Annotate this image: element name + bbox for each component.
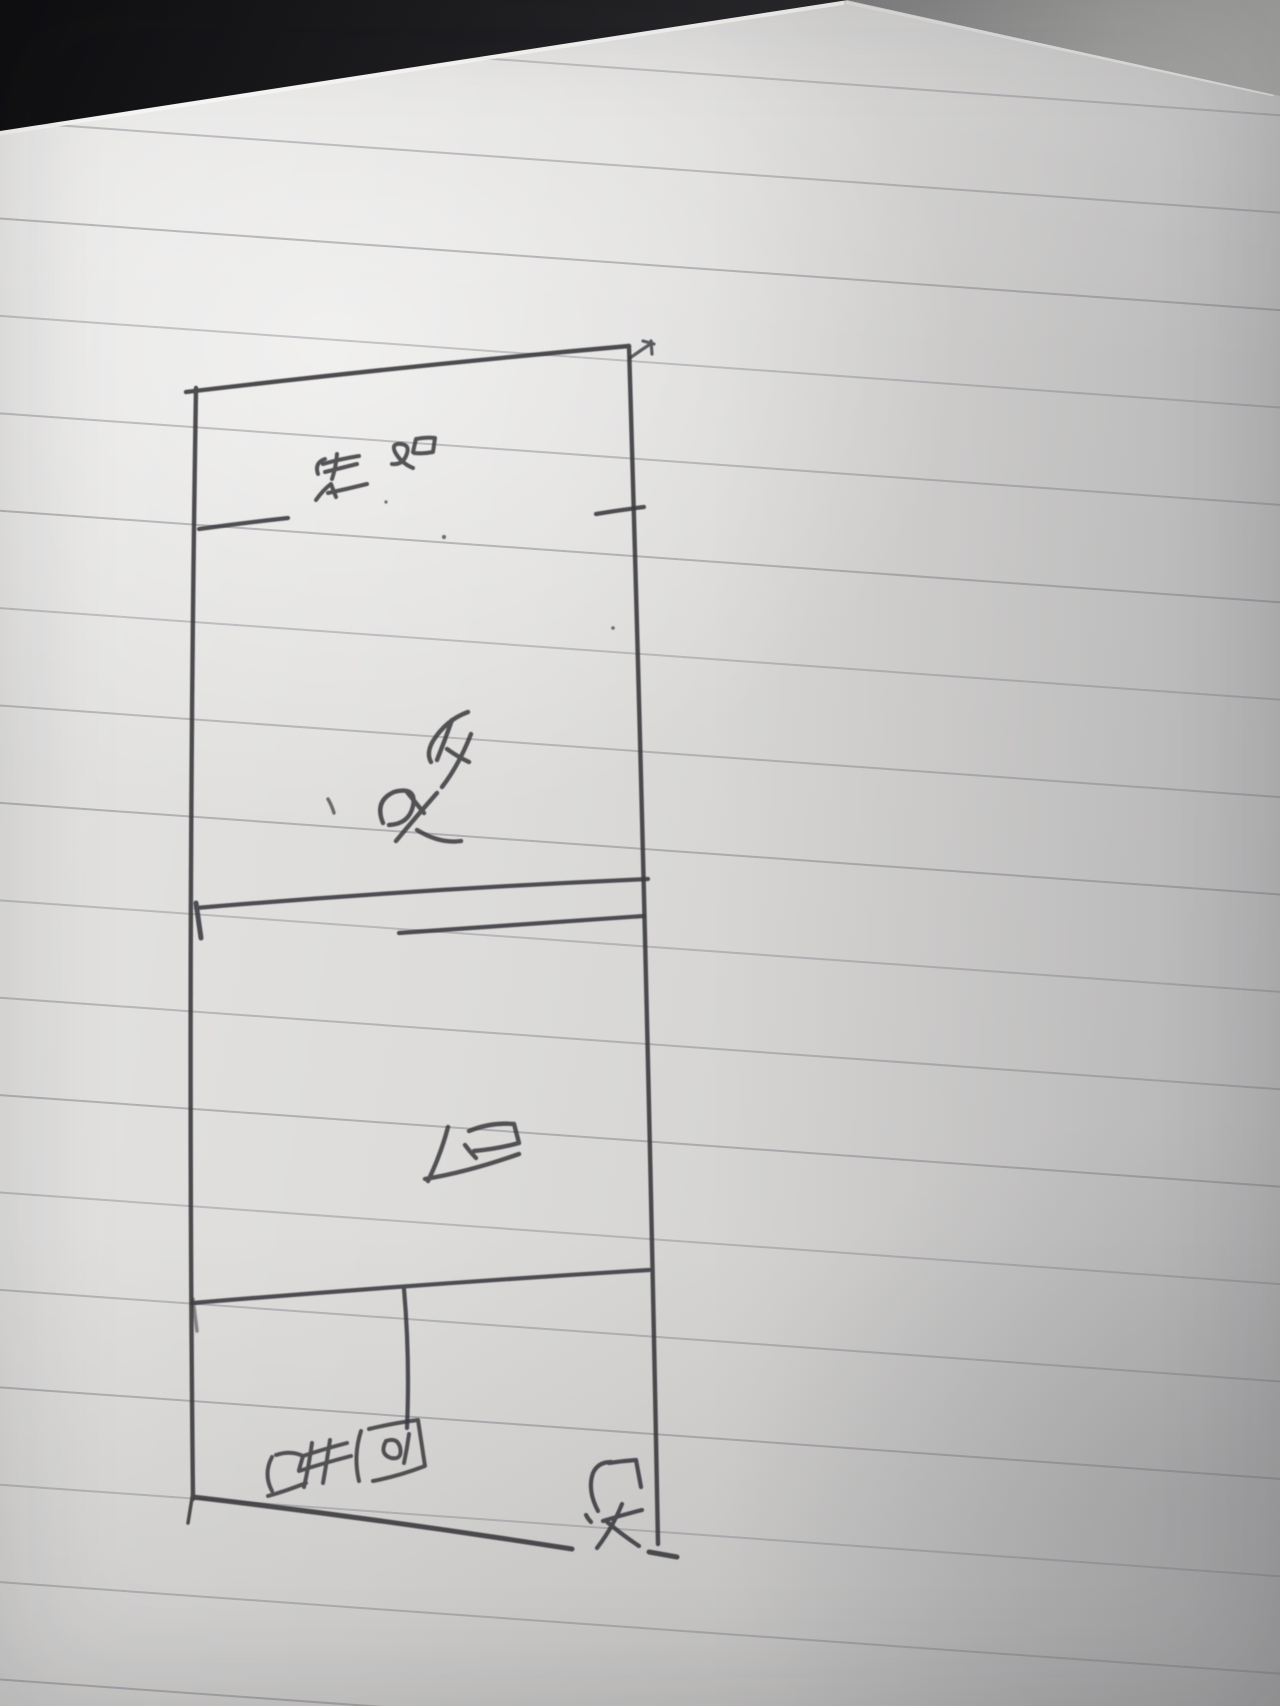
ruled-line [0, 120, 1280, 213]
bathroom-wall [404, 1289, 408, 1428]
ruled-line [0, 1679, 1280, 1706]
balcony-divider-right [596, 507, 644, 514]
floor-plan-drawing [0, 0, 1280, 1706]
interior-walls [193, 507, 649, 1428]
ruled-line [0, 218, 1280, 311]
ruled-line [0, 413, 1280, 506]
label-bathroom: 卫生间 [320, 1390, 384, 1534]
label-hall: 厅 [432, 1138, 496, 1186]
stray-ink-marks [328, 500, 615, 813]
label-main-door: 大门 [606, 1454, 670, 1550]
ruled-line [0, 315, 1280, 408]
outer-walls [186, 346, 677, 1557]
hall-entry-divider [193, 1270, 649, 1303]
wall-left [191, 388, 196, 1499]
bedroom-hall-divider-second-line [399, 916, 644, 933]
wall-left-bottom-overshoot [188, 1492, 193, 1523]
wall-top [186, 346, 629, 392]
corner-pen-marks [630, 341, 654, 358]
notebook-photo: 阳台 卧室 厅 卫生间 大门 [0, 0, 1280, 1706]
ruled-line [0, 1581, 1280, 1674]
label-balcony: 阳台 [316, 424, 380, 520]
bedroom-hall-divider [196, 879, 648, 908]
label-bedroom: 卧室 [391, 724, 455, 820]
wall-bottom-right-stub [649, 1552, 677, 1557]
ink-layer [186, 341, 677, 1557]
